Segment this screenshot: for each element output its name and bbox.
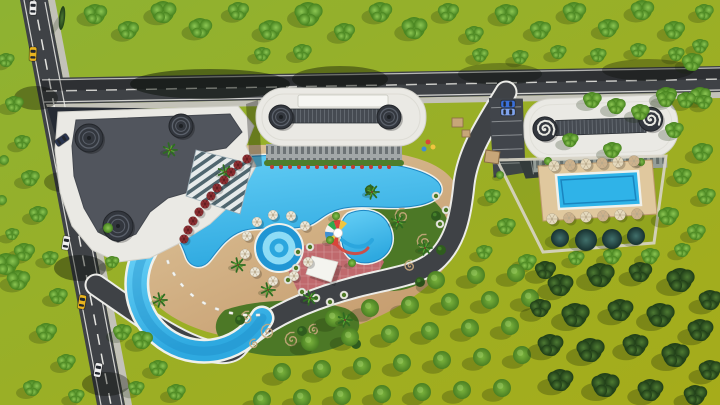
car [501, 108, 516, 116]
building-b [246, 88, 426, 169]
building-b-hedge [264, 160, 404, 166]
flower [324, 165, 328, 169]
pergola [484, 150, 500, 164]
flower [306, 165, 310, 169]
slide-pool [341, 210, 392, 262]
sun-lounger [256, 314, 260, 317]
bush [348, 259, 356, 267]
bush [326, 236, 334, 244]
orchard-tree [493, 379, 511, 397]
car [29, 0, 38, 15]
orchard-tree [461, 319, 479, 337]
site-plan-rendering [0, 0, 720, 405]
garden-bush [436, 245, 446, 255]
flower [378, 165, 382, 169]
flower [279, 165, 283, 169]
flower [333, 165, 337, 169]
orchard-tree [313, 360, 331, 378]
flower [342, 165, 346, 169]
garden-bush [431, 211, 441, 221]
teal-tree [551, 229, 569, 247]
car [501, 100, 516, 108]
sun-lounger [243, 314, 247, 317]
orchard-tree [353, 357, 371, 375]
orchard-tree [453, 381, 471, 399]
orchard-tree [481, 291, 499, 309]
orchard-tree [507, 264, 525, 282]
orchard-tree [467, 266, 485, 284]
orchard-tree [341, 328, 359, 346]
orchard-tree [427, 271, 445, 289]
bush [103, 223, 113, 233]
slide-tower-hub [334, 229, 343, 238]
flower [297, 165, 301, 169]
bush [332, 212, 340, 220]
tree-shadow-on-road [458, 63, 542, 85]
teal-tree [602, 229, 622, 249]
car [29, 46, 38, 61]
orchard-tree [421, 322, 439, 340]
flower [288, 165, 292, 169]
teal-tree [575, 229, 597, 251]
teal-tree [627, 227, 645, 245]
flower [270, 165, 274, 169]
flower [369, 165, 373, 169]
orchard-tree [301, 333, 319, 351]
building-b-facade [266, 144, 402, 162]
pergola [462, 130, 470, 137]
garden-bush [235, 315, 245, 325]
sun-lounger [229, 311, 233, 314]
orchard-tree [473, 348, 491, 366]
playground-equipment [431, 145, 436, 150]
skylight [298, 95, 388, 107]
orchard-tree [501, 317, 519, 335]
flower [351, 165, 355, 169]
site-plan-svg [0, 0, 720, 405]
orchard-tree [333, 387, 351, 405]
orchard-tree [413, 383, 431, 401]
round-pool-ring [275, 244, 284, 253]
orchard-tree [361, 299, 379, 317]
orchard-tree [401, 296, 419, 314]
orchard-tree [381, 325, 399, 343]
flower [360, 165, 364, 169]
flower [315, 165, 319, 169]
orchard-tree [433, 351, 451, 369]
orchard-tree [441, 293, 459, 311]
orchard-tree [393, 354, 411, 372]
orchard-tree [273, 363, 291, 381]
orchard-tree [373, 385, 391, 403]
flower [387, 165, 391, 169]
playground-equipment [426, 140, 431, 145]
pergola [452, 118, 463, 127]
playground-equipment [422, 147, 427, 152]
bush [496, 171, 504, 179]
